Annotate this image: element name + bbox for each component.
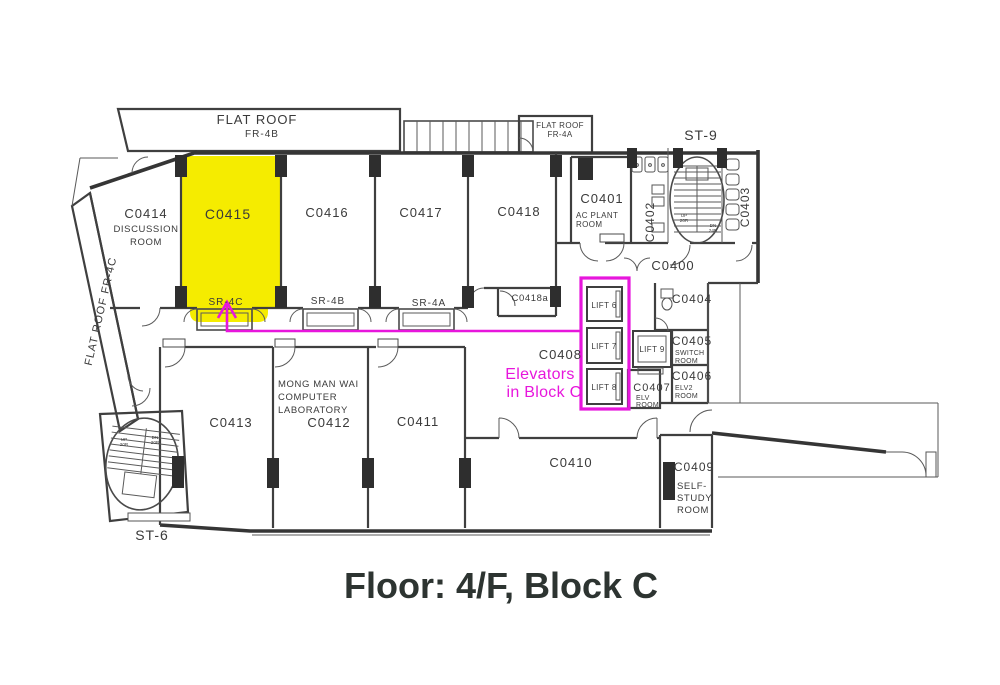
label-c0414: C0414	[124, 206, 167, 221]
label-c0409: C0409	[674, 460, 714, 474]
label-c0407-sub1: ELV	[636, 395, 650, 402]
label-c0412: C0412	[307, 415, 350, 430]
label-c0414-sub1: DISCUSSION	[113, 224, 178, 235]
label-c0410: C0410	[549, 455, 592, 470]
label-c0418: C0418	[497, 204, 540, 219]
label-c0413: C0413	[209, 415, 252, 430]
elevators-note-line1: Elevators	[505, 366, 574, 383]
floor-plan-page: FLAT ROOF FR-4B FLAT ROOF FR-4A FLAT ROO…	[0, 0, 1000, 685]
label-c0409-sub2: STUDY	[677, 493, 712, 504]
label-c0402: C0402	[643, 202, 657, 242]
label-c0408: C0408	[539, 347, 582, 362]
label-c0403: C0403	[738, 187, 752, 227]
label-c0415: C0415	[205, 206, 251, 222]
label-c0407: C0407	[633, 382, 670, 394]
label-c0405-sub2: ROOM	[675, 358, 698, 365]
label-c0406-sub2: ROOM	[675, 393, 698, 400]
label-st6-up-risers: 20R	[120, 442, 129, 447]
label-c0407-sub2: ROOM	[636, 402, 659, 409]
right-edge-strip	[708, 283, 740, 403]
label-c0416: C0416	[305, 205, 348, 220]
label-c0412-sub1: MONG MAN WAI	[278, 379, 359, 390]
label-c0411: C0411	[397, 414, 439, 429]
label-c0404: C0404	[672, 292, 712, 306]
label-c0405-sub1: SWITCH	[675, 350, 704, 357]
label-st6-down-risers: 20R	[151, 440, 160, 445]
label-lift7: LIFT 7	[591, 342, 617, 351]
label-lift8: LIFT 8	[591, 383, 617, 392]
label-lift6: LIFT 6	[591, 301, 617, 310]
label-c0417: C0417	[399, 205, 442, 220]
label-c0401-sub1: AC PLANT	[576, 211, 618, 220]
label-c0412-sub2: COMPUTER	[278, 392, 337, 403]
elevators-note-line2: in Block C	[506, 384, 581, 401]
label-st9-down-risers: 24R	[709, 228, 718, 233]
label-fr4b-code: FR-4B	[245, 129, 279, 140]
label-c0409-sub1: SELF-	[677, 481, 707, 492]
label-st6: ST-6	[135, 527, 169, 543]
label-c0401-sub2: ROOM	[576, 220, 603, 229]
label-sr4a: SR-4A	[412, 298, 446, 309]
label-fr4a-code: FR-4A	[547, 130, 572, 139]
label-flat-roof-fr4a: FLAT ROOF	[536, 121, 584, 130]
label-flat-roof-fr4c: FLAT ROOF FR-4C	[83, 256, 120, 367]
label-c0409-sub3: ROOM	[677, 505, 709, 516]
label-c0400: C0400	[651, 258, 694, 273]
label-c0406: C0406	[672, 369, 712, 383]
flat-roof-hatch-strip	[404, 121, 533, 152]
floor-plan-drawing: FLAT ROOF FR-4B FLAT ROOF FR-4A FLAT ROO…	[0, 0, 1000, 685]
label-st9-up-risers: 20R	[680, 218, 689, 223]
walls-right-corridor	[708, 403, 938, 477]
label-c0414-sub2: ROOM	[130, 237, 162, 248]
label-c0418a: C0418a	[512, 293, 549, 304]
label-c0401: C0401	[580, 191, 623, 206]
corridor-end-door-frame	[926, 452, 936, 477]
label-st9: ST-9	[684, 127, 718, 143]
label-sr4b: SR-4B	[311, 296, 345, 307]
label-flat-roof-fr4b: FLAT ROOF	[217, 112, 298, 127]
page-title: Floor: 4/F, Block C	[344, 565, 658, 606]
label-c0406-sub1: ELV2	[675, 385, 693, 392]
label-sr4c: SR-4C	[208, 297, 243, 308]
label-c0405: C0405	[672, 334, 712, 348]
label-lift9: LIFT 9	[639, 345, 665, 354]
